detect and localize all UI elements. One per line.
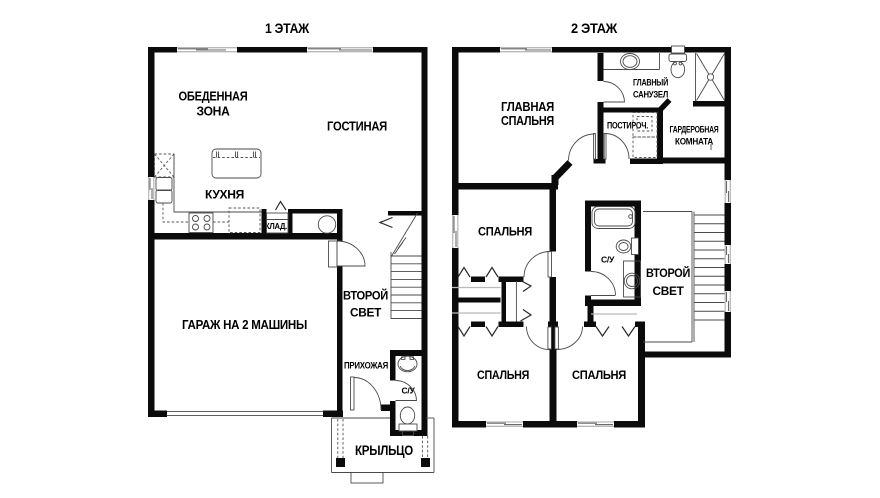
svg-text:ГОСТИНАЯ: ГОСТИНАЯ bbox=[327, 120, 387, 134]
svg-text:СПАЛЬНЯ: СПАЛЬНЯ bbox=[501, 114, 554, 128]
svg-text:СВЕТ: СВЕТ bbox=[653, 286, 684, 298]
svg-text:СВЕТ: СВЕТ bbox=[350, 308, 381, 320]
svg-text:ГЛАВНАЯ: ГЛАВНАЯ bbox=[501, 100, 554, 114]
svg-text:КЛАД.: КЛАД. bbox=[265, 222, 287, 231]
svg-text:ВТОРОЙ: ВТОРОЙ bbox=[646, 267, 690, 280]
svg-text:КОМНАТА: КОМНАТА bbox=[675, 137, 713, 148]
svg-text:2 ЭТАЖ: 2 ЭТАЖ bbox=[571, 21, 618, 36]
svg-text:КРЫЛЬЦО: КРЫЛЬЦО bbox=[355, 443, 413, 458]
svg-text:СПАЛЬНЯ: СПАЛЬНЯ bbox=[477, 370, 529, 382]
svg-text:ЗОНА: ЗОНА bbox=[197, 105, 230, 119]
svg-text:САНУЗЕЛ: САНУЗЕЛ bbox=[633, 90, 669, 101]
svg-text:1 ЭТАЖ: 1 ЭТАЖ bbox=[265, 21, 310, 36]
svg-text:ОБЕДЕННАЯ: ОБЕДЕННАЯ bbox=[179, 90, 248, 104]
svg-text:ПРИХОЖАЯ: ПРИХОЖАЯ bbox=[344, 361, 388, 372]
svg-text:С/У: С/У bbox=[601, 255, 615, 265]
svg-text:ГЛАВНЫЙ: ГЛАВНЫЙ bbox=[633, 77, 668, 89]
svg-text:ГАРАЖ НА 2 МАШИНЫ: ГАРАЖ НА 2 МАШИНЫ bbox=[182, 318, 307, 332]
svg-text:КУХНЯ: КУХНЯ bbox=[205, 190, 244, 202]
svg-text:ВТОРОЙ: ВТОРОЙ bbox=[343, 290, 388, 303]
svg-text:ПОСТИРОЧ.: ПОСТИРОЧ. bbox=[607, 121, 648, 132]
svg-text:ГАРДЕРОБНАЯ: ГАРДЕРОБНАЯ bbox=[670, 125, 719, 136]
svg-text:СПАЛЬНЯ: СПАЛЬНЯ bbox=[478, 227, 532, 239]
svg-text:СПАЛЬНЯ: СПАЛЬНЯ bbox=[572, 370, 626, 382]
